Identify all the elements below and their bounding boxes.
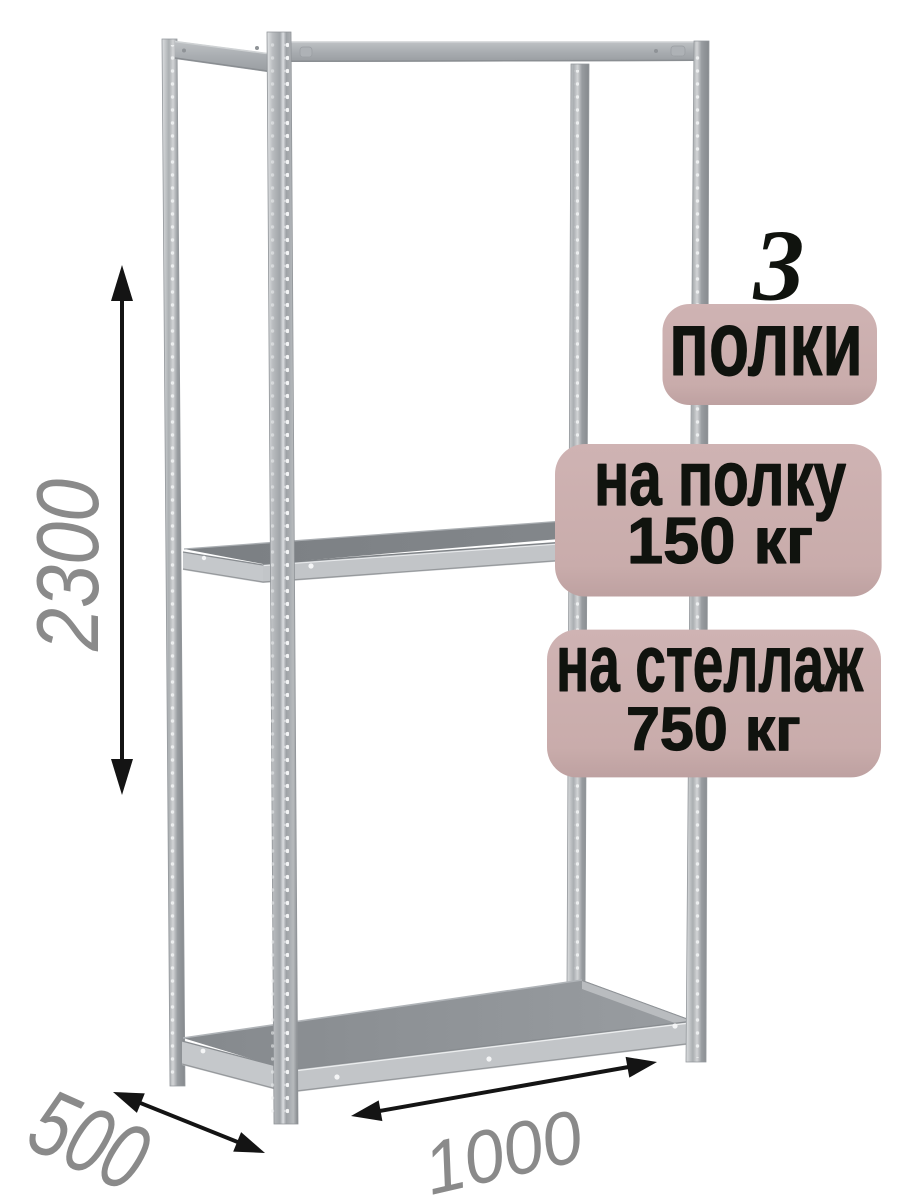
- svg-text:полки: полки: [669, 292, 863, 394]
- svg-text:150 кг: 150 кг: [627, 504, 813, 577]
- svg-text:2300: 2300: [18, 479, 117, 652]
- svg-text:750 кг: 750 кг: [626, 695, 801, 763]
